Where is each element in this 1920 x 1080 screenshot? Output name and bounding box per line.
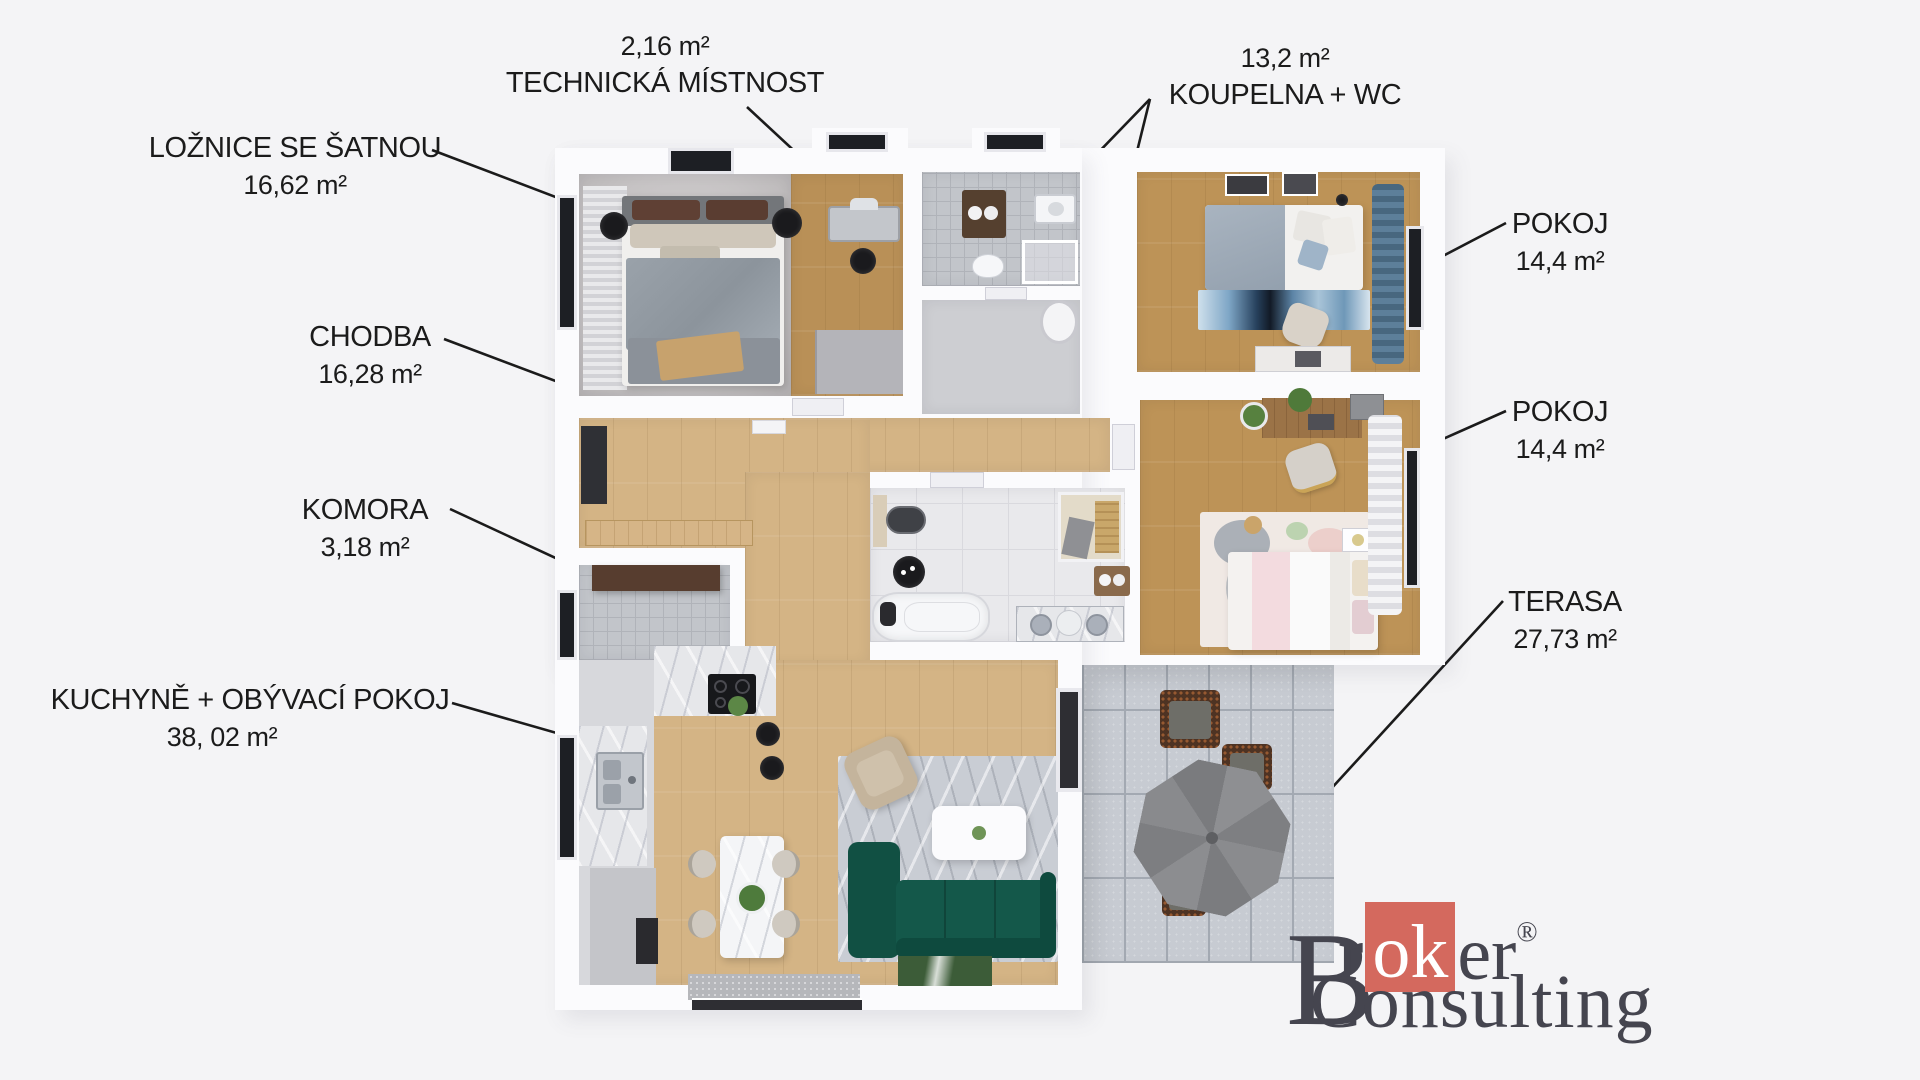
koupelna-door: [930, 472, 984, 488]
pokoj1-laptop: [1295, 351, 1321, 367]
room-area: 16,28 m²: [245, 356, 495, 393]
doormat: [688, 974, 860, 1000]
label-kuchyne: KUCHYNĚ + OBÝVACÍ POKOJ 38, 02 m²: [50, 682, 450, 756]
hall-cabinet: [581, 426, 607, 504]
room-name: KOMORA: [240, 492, 490, 529]
pokoj2-bed: [1228, 552, 1378, 650]
label-koupelna-wc: 13,2 m² KOUPELNA + WC: [1115, 40, 1455, 114]
label-chodba: CHODBA 16,28 m²: [245, 319, 495, 393]
pokoj1-duvet: [1205, 205, 1285, 290]
room-name: TERASA: [1460, 584, 1670, 621]
label-pokoj-1: POKOJ 14,4 m²: [1460, 206, 1660, 280]
kitchen-sink: [596, 752, 644, 810]
desk-plant-1: [1240, 402, 1268, 430]
coffee-table: [932, 806, 1026, 860]
chodba-floor-strip: [745, 472, 870, 665]
terrace-side-door: [1056, 688, 1082, 792]
vanity-tray: [1056, 610, 1082, 636]
technicka-door: [985, 287, 1027, 300]
bedroom-window: [557, 195, 577, 330]
toilet-frame: [873, 495, 887, 547]
room-area: 14,4 m²: [1460, 431, 1660, 468]
pokoj2-window: [1404, 448, 1420, 588]
dining-chair-2: [688, 910, 716, 938]
towel-rack-2: [1094, 566, 1130, 596]
pokoj1-window: [1406, 226, 1424, 330]
vanity-sink-2: [1086, 614, 1108, 636]
skylight-window-2: [826, 132, 888, 152]
pokoj2-laptop: [1308, 414, 1334, 430]
bathtub: [872, 592, 990, 642]
bar-stool-2: [760, 756, 784, 780]
dressing-closet: [815, 330, 903, 394]
kitchen-window: [557, 735, 577, 860]
bar-stool-1: [756, 722, 780, 746]
wash-basin: [1034, 194, 1076, 224]
dining-chair-4: [772, 910, 800, 938]
desk-plant-2: [1288, 388, 1312, 412]
shower-enclosure: [1058, 492, 1124, 562]
room-area: 2,16 m²: [470, 28, 860, 65]
room-area: 3,18 m²: [240, 529, 490, 566]
room-area: 14,4 m²: [1460, 243, 1660, 280]
komora-window: [557, 590, 577, 660]
label-loznice: LOŽNICE SE ŠATNOU 16,62 m²: [115, 130, 475, 204]
broker-consulting-logo: B roker® Consulting: [1286, 912, 1706, 1052]
terrace-armchair-1: [1160, 690, 1220, 748]
sofa-chaise: [848, 842, 900, 958]
counter-plant: [728, 696, 748, 716]
ceiling-light: [752, 420, 786, 434]
room-name: KOUPELNA + WC: [1115, 77, 1455, 114]
sofa-backrest: [896, 938, 1054, 958]
room-area: 27,73 m²: [1460, 621, 1670, 658]
komora-counter: [592, 565, 720, 591]
skylight-window-1: [668, 148, 734, 174]
dining-chair-3: [772, 850, 800, 878]
room-name: LOŽNICE SE ŠATNOU: [115, 130, 475, 167]
label-technicka-mistnost: 2,16 m² TECHNICKÁ MÍSTNOST: [470, 28, 860, 102]
sliding-terrace-door: [692, 998, 862, 1010]
vanity-sink-1: [1030, 614, 1052, 636]
room-name: POKOJ: [1460, 206, 1660, 243]
wall-picture-2: [1282, 172, 1318, 196]
bedside-table-right: [772, 208, 802, 238]
vanity-table: [828, 206, 900, 242]
room-area: 16,62 m²: [115, 167, 475, 204]
room-name: CHODBA: [245, 319, 495, 356]
towel-shelf: [962, 190, 1006, 238]
room-area: 38, 02 m²: [22, 719, 422, 756]
teddy-bear: [1244, 516, 1262, 534]
bedside-table-left: [600, 212, 628, 240]
pokoj2-curtains: [1368, 415, 1402, 615]
shower-frame: [1022, 240, 1078, 284]
boiler: [1040, 300, 1078, 344]
table-plant: [736, 882, 768, 914]
shower-mat: [1061, 517, 1094, 560]
kitchen-oven: [636, 918, 658, 964]
pillow-brown-1: [632, 200, 700, 220]
label-komora: KOMORA 3,18 m²: [240, 492, 490, 566]
room-name: KUCHYNĚ + OBÝVACÍ POKOJ: [50, 682, 450, 719]
hall-sideboard: [585, 520, 753, 546]
wall-picture-1: [1225, 174, 1269, 196]
vanity-mirror: [850, 198, 878, 210]
shower-bench: [1095, 501, 1119, 553]
room-area: 13,2 m²: [1115, 40, 1455, 77]
pillow-beige-row: [630, 224, 776, 248]
dining-chair-1: [688, 850, 716, 878]
loznice-door: [792, 398, 844, 416]
skylight-window-3: [984, 132, 1046, 152]
bathroom-toilet: [886, 506, 926, 534]
sofa-armrest: [1040, 872, 1056, 958]
pokoj-door: [1112, 424, 1135, 470]
pokoj1-lamp: [1336, 194, 1348, 206]
room-name: POKOJ: [1460, 394, 1660, 431]
bathtub-pillow: [880, 602, 896, 626]
pillow-brown-2: [706, 200, 768, 220]
floorplan-page: { "labels": [ {"id":"loznice", "name":"L…: [0, 0, 1920, 1080]
label-pokoj-2: POKOJ 14,4 m²: [1460, 394, 1660, 468]
green-rug: [898, 956, 992, 986]
label-terasa: TERASA 27,73 m²: [1460, 584, 1670, 658]
parasol-pole: [1206, 832, 1218, 844]
pokoj1-curtains: [1372, 184, 1404, 364]
wc-toilet: [972, 254, 1004, 278]
room-name: TECHNICKÁ MÍSTNOST: [470, 65, 860, 102]
vanity-stool: [850, 248, 876, 274]
logo-line-consulting: Consulting: [1310, 964, 1654, 1040]
bathroom-stool: [893, 556, 925, 588]
registered-mark: ®: [1516, 917, 1537, 948]
